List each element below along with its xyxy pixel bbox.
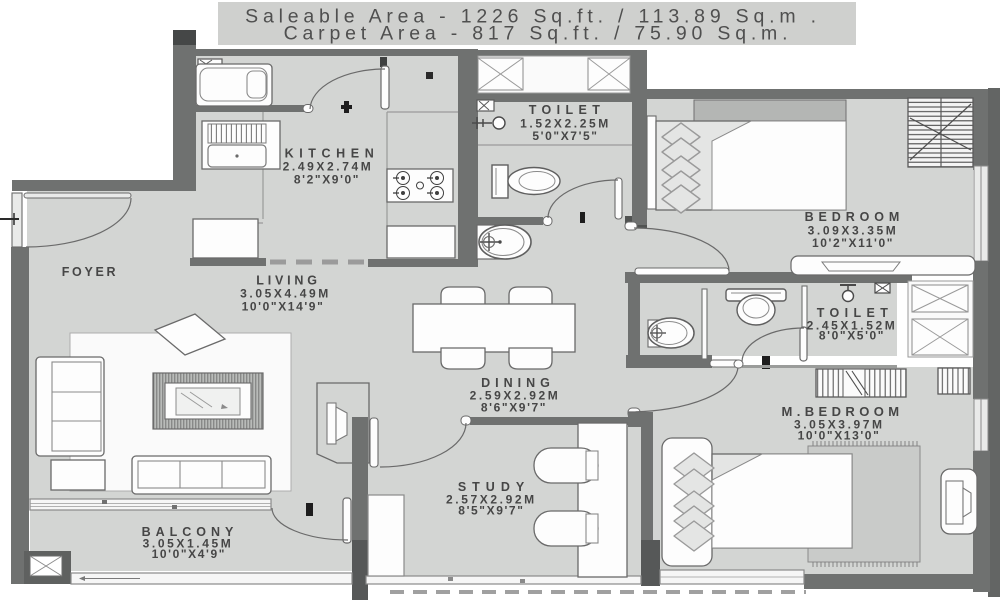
svg-text:10'0"X13'0": 10'0"X13'0" xyxy=(798,429,881,443)
svg-text:8'2"X9'0": 8'2"X9'0" xyxy=(294,173,360,187)
svg-text:8'0"X5'0": 8'0"X5'0" xyxy=(819,329,885,343)
svg-text:Carpet Area - 817 Sq.ft. / 75.: Carpet Area - 817 Sq.ft. / 75.90 Sq.m. xyxy=(284,23,793,45)
svg-text:TOILET: TOILET xyxy=(529,103,606,117)
svg-text:FOYER: FOYER xyxy=(62,265,119,279)
svg-text:5'0"X7'5": 5'0"X7'5" xyxy=(532,129,598,143)
svg-text:8'6"X9'7": 8'6"X9'7" xyxy=(481,401,547,415)
svg-text:8'5"X9'7": 8'5"X9'7" xyxy=(458,504,524,518)
svg-text:10'0"X4'9": 10'0"X4'9" xyxy=(152,547,226,561)
svg-text:LIVING: LIVING xyxy=(256,274,320,288)
svg-text:BEDROOM: BEDROOM xyxy=(805,210,905,224)
svg-text:KITCHEN: KITCHEN xyxy=(285,147,380,161)
svg-text:3.05X4.49M: 3.05X4.49M xyxy=(240,287,331,301)
svg-text:10'2"X11'0": 10'2"X11'0" xyxy=(812,236,894,250)
svg-text:2.49X2.74M: 2.49X2.74M xyxy=(283,160,374,174)
svg-text:10'0"X14'9": 10'0"X14'9" xyxy=(242,300,325,314)
